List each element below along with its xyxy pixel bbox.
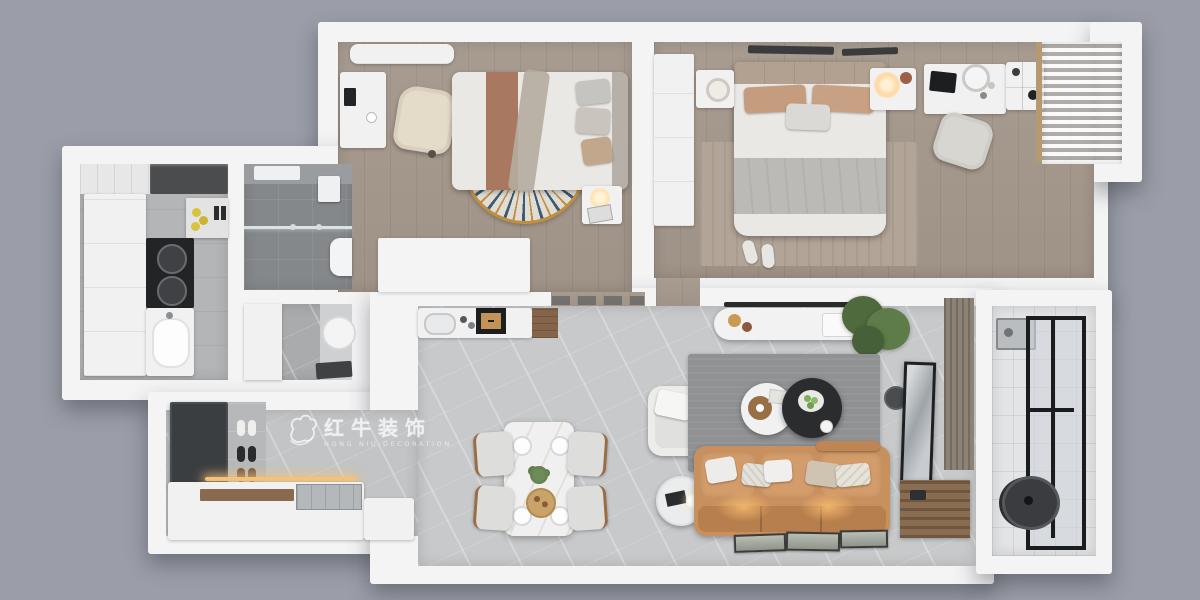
metal-tray <box>296 484 362 510</box>
vanity-mirror <box>962 64 990 92</box>
coffee-table-black <box>782 378 842 438</box>
alcove-door-panel <box>244 304 282 380</box>
decor-object <box>706 78 730 102</box>
floor-picture-frame-3 <box>840 530 888 549</box>
console-tray-gold <box>728 314 741 327</box>
desk-secondary <box>340 72 386 148</box>
bottle-1 <box>214 206 219 220</box>
armchair <box>391 84 458 156</box>
dining-chair-4 <box>567 485 609 532</box>
bar-picture-frame <box>476 308 506 334</box>
cooktop <box>146 238 194 308</box>
sofa-pillow-white-2 <box>763 459 792 483</box>
slipper-2 <box>761 243 775 268</box>
side-storage-shelf <box>944 298 974 470</box>
table-plant <box>530 466 548 484</box>
vanity-desk-master <box>924 64 1006 114</box>
cabinet-light-strip <box>205 477 357 481</box>
floor-picture-frame-2 <box>786 532 840 552</box>
bench-item-dark <box>910 490 926 500</box>
headboard-master <box>734 62 886 84</box>
sofa-leather <box>694 446 890 536</box>
bar-bottle-1 <box>460 316 467 323</box>
bed-pillow-tan <box>580 136 613 166</box>
bed-secondary <box>452 72 628 190</box>
doorway-bedroom-master <box>656 278 700 308</box>
armchair-caster <box>428 150 436 158</box>
nightstand-master-right <box>870 68 916 110</box>
console-tray-brown <box>742 322 752 332</box>
toilet <box>330 238 352 276</box>
dining-chair-2 <box>473 485 515 532</box>
shelf-item-dark <box>1012 68 1020 76</box>
sofa-pillow-pattern-2 <box>835 462 871 487</box>
tv-panel <box>724 302 856 307</box>
side-table-magazine <box>665 490 687 507</box>
desk-photo-frame <box>344 88 356 106</box>
sofa-glow-1 <box>716 492 772 522</box>
ceiling-light-track-1 <box>748 45 834 54</box>
heater-dial <box>1004 328 1013 337</box>
entry-bench-cabinet <box>168 482 364 540</box>
faucet <box>166 312 173 319</box>
entry-dark-cabinet <box>170 402 228 488</box>
closet-volume <box>378 238 530 292</box>
floor-mat-dark <box>315 361 352 379</box>
sofa-headrest-bar <box>816 441 880 451</box>
dining-chair-3 <box>567 431 609 478</box>
shower-glass-partition <box>244 226 352 229</box>
fruit-plate <box>798 390 824 412</box>
wood-slat-bench <box>900 480 970 538</box>
bedside-lamp-glow <box>874 72 900 98</box>
cosmetics-jar-1 <box>988 82 995 89</box>
shoes-white-pair <box>237 420 245 436</box>
dining-chair-1 <box>473 431 515 478</box>
lemon-2 <box>199 216 208 225</box>
bottle-2 <box>221 206 226 220</box>
apartment-floorplan-render: 红牛装饰 HONG NIU DECORATION <box>0 0 1200 600</box>
ac-unit <box>350 44 454 64</box>
coffee-cup <box>756 404 764 412</box>
lemon-1 <box>192 208 201 217</box>
plant-leaves-3 <box>852 326 884 356</box>
shoe-shelf <box>228 402 266 488</box>
nightstand-master-left <box>696 70 734 108</box>
glass-clip-1 <box>290 224 296 230</box>
small-cup <box>820 420 833 433</box>
dining-table <box>504 422 574 536</box>
leaning-mirror <box>900 361 936 490</box>
kitchen-counter-main <box>84 194 146 376</box>
lemon-3 <box>191 222 200 231</box>
desk-bottle <box>366 112 377 123</box>
cosmetics-jar-2 <box>980 92 987 99</box>
floor-picture-frame-1 <box>734 533 787 553</box>
bar-counter <box>418 308 532 338</box>
plate-1 <box>512 436 532 456</box>
bed-pillow-grey-2 <box>575 107 611 135</box>
shoes-black-pair <box>237 446 245 462</box>
nightstand-secondary <box>582 186 622 224</box>
kitchen-counter-sink <box>146 308 194 376</box>
entry-bench-step <box>364 498 414 540</box>
range-hood <box>150 164 228 194</box>
wall-vent-slots <box>552 296 644 305</box>
pillow-small-white <box>786 103 831 131</box>
bar-bottle-2 <box>468 322 475 329</box>
hose-reel-hub <box>1024 496 1033 505</box>
wood-recess-tray <box>200 489 294 501</box>
bar-wood-cabinet <box>532 308 558 338</box>
kitchen-shelf <box>186 198 228 238</box>
laptop <box>929 71 957 94</box>
bed-headboard <box>612 72 628 190</box>
bathroom-ceiling-light <box>254 166 300 180</box>
bed-master <box>734 62 886 236</box>
glass-door-divider-h <box>1030 408 1074 412</box>
glass-clip-2 <box>316 224 322 230</box>
green-fruits <box>804 395 811 402</box>
hose-reel <box>1002 476 1060 530</box>
food-bowl <box>526 488 556 518</box>
blanket-grey <box>734 158 886 214</box>
washbasin <box>322 316 356 350</box>
pot-2 <box>157 276 187 306</box>
sofa-glow-2 <box>800 492 856 522</box>
kitchen-wall-tiles <box>80 164 150 194</box>
wood-tray <box>900 72 912 84</box>
magazine <box>587 204 613 224</box>
bar-sink <box>424 313 456 335</box>
pot-1 <box>157 244 187 274</box>
shower-control-box <box>318 176 340 202</box>
kitchen-sink <box>152 318 190 368</box>
sheer-curtains <box>1042 42 1122 164</box>
sofa-pillow-white-1 <box>704 456 738 485</box>
bed-pillow-grey-1 <box>575 78 611 105</box>
wardrobe-master <box>654 54 694 226</box>
